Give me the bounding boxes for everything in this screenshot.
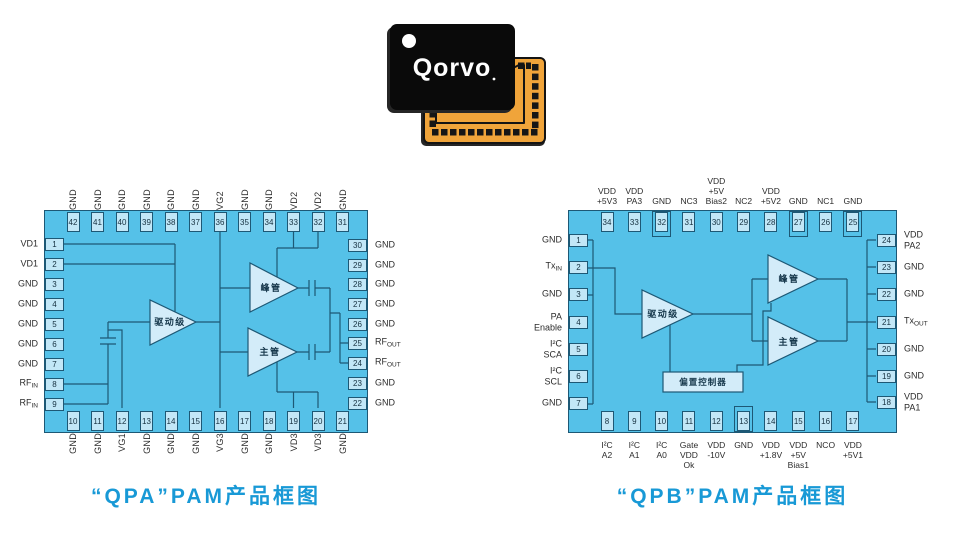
pin-label-38: GND [164,170,178,210]
qpb-diagram: 驱动级 峰管 主管 偏置控制器 “QPB”PAM产品框图 34VDD+5V333… [568,210,897,433]
pin-box-11: 11 [91,411,104,431]
pin-box-8: 8 [45,378,64,391]
pin-box-1: 1 [569,234,588,247]
pin-box-18: 18 [877,396,896,409]
pin-box-21: 21 [336,411,349,431]
pin-box-32: 32 [655,212,668,232]
pin-label-23: GND [904,262,960,273]
pin-label-16: VG3 [213,433,227,473]
pin-box-16: 16 [819,411,832,431]
pin-box-41: 41 [91,212,104,232]
pin-box-8: 8 [601,411,614,431]
pin-box-16: 16 [214,411,227,431]
pin-box-29: 29 [348,259,367,272]
pin-label-21: TxOUT [904,316,960,329]
pin-label-27: GND [375,299,433,310]
pin-label-11: GND [91,433,105,473]
pin-label-17: GND [238,433,252,473]
pin-label-18: VDDPA1 [904,391,960,412]
pin-label-25: GND [830,164,876,206]
pin-label-21: GND [336,433,350,473]
qorvo-chip-photo: Qorvo [372,8,582,158]
qpb-bias-label: 偏置控制器 [679,377,727,387]
pin-label-24: RFOUT [375,357,433,370]
pin-label-39: GND [140,170,154,210]
pin-box-11: 11 [682,411,695,431]
pin-box-27: 27 [348,298,367,311]
pin-label-4: GND [0,299,38,310]
pin-box-17: 17 [846,411,859,431]
pin-box-21: 21 [877,316,896,329]
pin-label-6: I²CSCL [504,365,562,386]
pin-label-9: RFIN [0,398,38,411]
pin-label-3: GND [504,289,562,300]
pin-box-20: 20 [877,343,896,356]
pin-label-28: GND [375,279,433,290]
pin-label-8: RFIN [0,378,38,391]
pin-box-24: 24 [348,357,367,370]
pin-box-30: 30 [348,239,367,252]
pin-box-5: 5 [569,343,588,356]
pin-box-15: 15 [189,411,202,431]
pin-label-42: GND [66,170,80,210]
pin-label-2: VD1 [0,259,38,270]
pin-label-22: GND [904,289,960,300]
pin-box-28: 28 [764,212,777,232]
pin-label-1: GND [504,235,562,246]
pin-box-13: 13 [140,411,153,431]
pin-label-3: GND [0,279,38,290]
pin-box-38: 38 [165,212,178,232]
pin-label-18: GND [262,433,276,473]
qpa-wiring: 驱动级 峰管 主管 [44,210,368,433]
pin-label-37: GND [189,170,203,210]
pin-box-14: 14 [165,411,178,431]
pin-label-32: VD2 [311,170,325,210]
pin-label-17: VDD+5V1 [830,440,876,460]
pin-box-35: 35 [238,212,251,232]
pin-box-18: 18 [263,411,276,431]
pin-label-19: GND [904,371,960,382]
pin-box-25: 25 [846,212,859,232]
pin-label-24: VDDPA2 [904,229,960,250]
pin-box-31: 31 [682,212,695,232]
pin-box-33: 33 [628,212,641,232]
pin-label-30: GND [375,240,433,251]
pin-box-33: 33 [287,212,300,232]
pin-box-34: 34 [263,212,276,232]
pin-box-22: 22 [877,288,896,301]
pin-label-12: VG1 [115,433,129,473]
pin-box-34: 34 [601,212,614,232]
pin-label-29: GND [375,260,433,271]
pin-box-3: 3 [45,278,64,291]
qpa-main-label: 主管 [259,346,280,357]
qorvo-logo: Qorvo [413,54,492,82]
pin-label-22: GND [375,398,433,409]
pin-box-19: 19 [877,370,896,383]
pin-label-6: GND [0,339,38,350]
pin-box-6: 6 [45,338,64,351]
pin-box-23: 23 [348,377,367,390]
pin-box-2: 2 [45,258,64,271]
chip-top-package: Qorvo [387,24,515,113]
pin-box-40: 40 [116,212,129,232]
pin-box-31: 31 [336,212,349,232]
pin-label-7: GND [504,398,562,409]
pin-label-34: GND [262,170,276,210]
pin1-dot [402,34,416,48]
pin-box-2: 2 [569,261,588,274]
pin-label-20: GND [904,344,960,355]
pin-label-13: GND [140,433,154,473]
pin-box-20: 20 [312,411,325,431]
pin-box-14: 14 [764,411,777,431]
pin-box-19: 19 [287,411,300,431]
pin-label-5: GND [0,319,38,330]
pin-label-10: GND [66,433,80,473]
pin-box-12: 12 [710,411,723,431]
pin-box-42: 42 [67,212,80,232]
pin-label-33: VD2 [287,170,301,210]
pin-box-24: 24 [877,234,896,247]
pin-box-23: 23 [877,261,896,274]
pin-box-17: 17 [238,411,251,431]
pin-label-19: VD3 [287,433,301,473]
pin-box-25: 25 [348,337,367,350]
pin-label-31: GND [336,170,350,210]
pin-label-26: GND [375,319,433,330]
pin-box-9: 9 [45,398,64,411]
pin-label-20: VD3 [311,433,325,473]
pin-box-10: 10 [655,411,668,431]
pin-box-5: 5 [45,318,64,331]
pin-box-39: 39 [140,212,153,232]
pin-box-29: 29 [737,212,750,232]
pin-box-26: 26 [348,318,367,331]
pin-label-41: GND [91,170,105,210]
pin-label-25: RFOUT [375,337,433,350]
pin-label-36: VG2 [213,170,227,210]
pin-box-15: 15 [792,411,805,431]
qpb-caption: “QPB”PAM产品框图 [617,480,849,510]
pin-label-4: PAEnable [504,311,562,332]
qpa-peak-label: 峰管 [260,282,281,293]
pin-label-7: GND [0,359,38,370]
qpb-main-label: 主管 [778,336,799,347]
qpa-diagram: 驱动级 峰管 主管 “QPA”PAM产品框图 42GND41GND40GND39… [44,210,368,433]
pin-label-2: TxIN [504,261,562,274]
pin-box-10: 10 [67,411,80,431]
pin-box-36: 36 [214,212,227,232]
qpb-driver-label: 驱动级 [647,308,679,319]
pin-label-15: GND [189,433,203,473]
pin-box-3: 3 [569,288,588,301]
qpa-driver-label: 驱动级 [154,316,186,327]
pin-box-32: 32 [312,212,325,232]
pin-label-35: GND [238,170,252,210]
pin-box-9: 9 [628,411,641,431]
pin-label-40: GND [115,170,129,210]
pin-box-28: 28 [348,278,367,291]
pin-box-4: 4 [569,316,588,329]
figure-canvas: Qorvo 驱动级 峰管 主管 “QPA”PAM产品框图 42GND41GND4… [0,0,960,552]
pin-box-30: 30 [710,212,723,232]
pin-box-7: 7 [45,358,64,371]
pin-box-26: 26 [819,212,832,232]
qpb-peak-label: 峰管 [778,273,799,284]
qpb-wiring: 驱动级 峰管 主管 偏置控制器 [568,210,897,433]
pin-label-14: GND [164,433,178,473]
pin-box-13: 13 [737,411,750,431]
pin-box-7: 7 [569,397,588,410]
pin-box-12: 12 [116,411,129,431]
pin-box-4: 4 [45,298,64,311]
pin-label-23: GND [375,378,433,389]
pin-label-5: I²CSCA [504,338,562,359]
qpa-caption: “QPA”PAM产品框图 [91,480,321,510]
pin-box-6: 6 [569,370,588,383]
pin-box-27: 27 [792,212,805,232]
pin-box-22: 22 [348,397,367,410]
pin-box-37: 37 [189,212,202,232]
pin-label-1: VD1 [0,239,38,250]
pin-box-1: 1 [45,238,64,251]
